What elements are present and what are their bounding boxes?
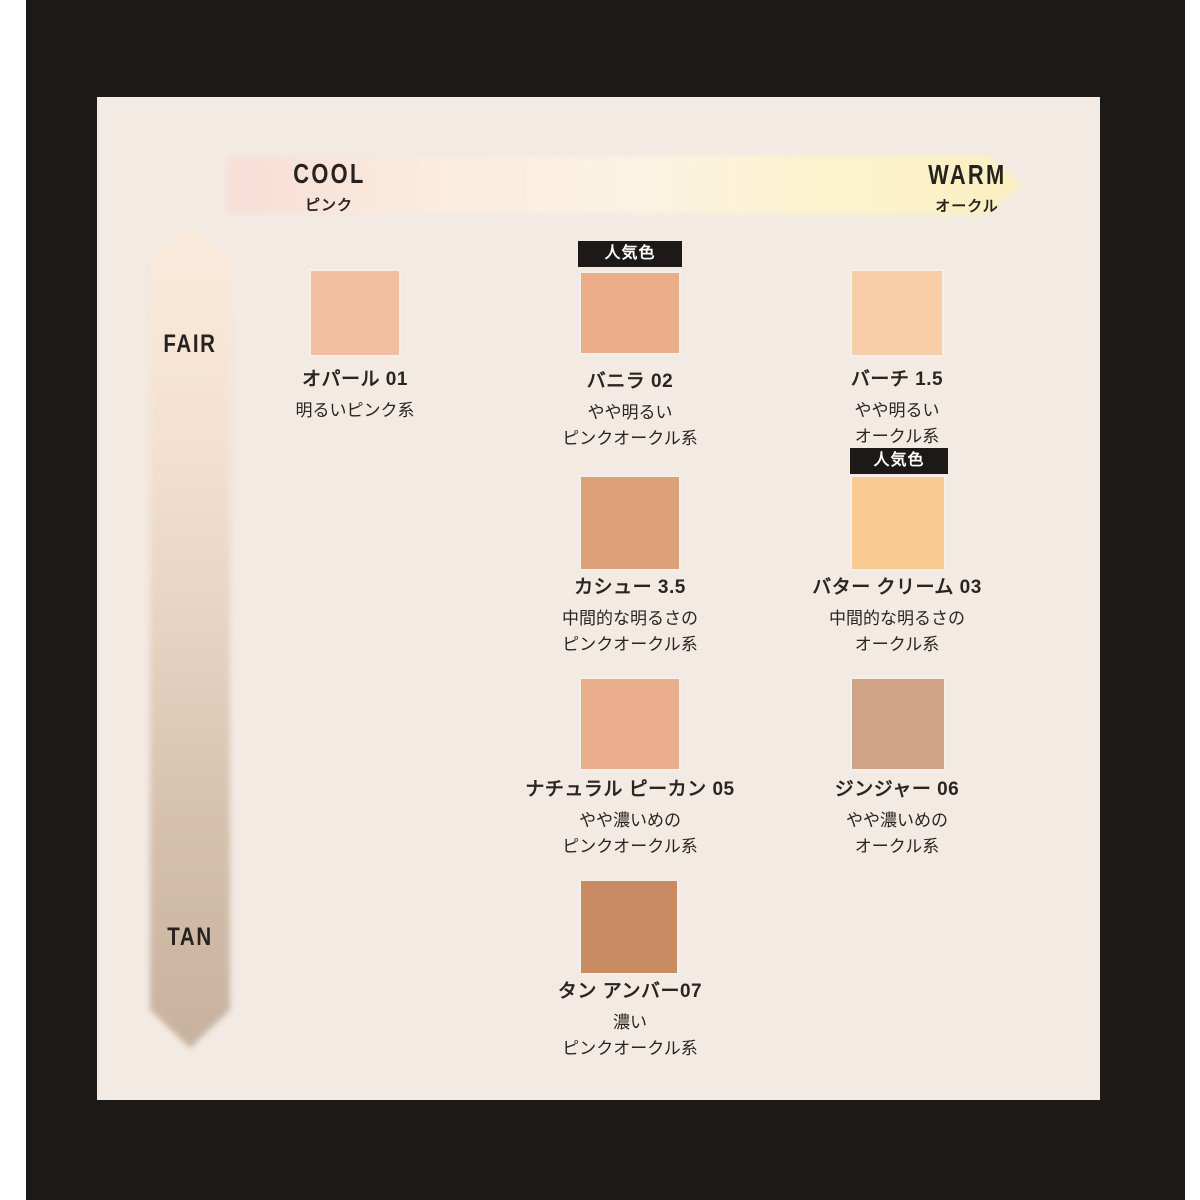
shade-name: バニラ 02 [490,366,770,393]
shade-label-tan-amber-07: タン アンバー07 濃い ピンクオークル系 [490,976,770,1062]
shade-name: ジンジャー 06 [757,774,1037,801]
popular-badge: 人気色 [850,448,948,474]
shade-label-vanilla-02: バニラ 02 やや明るい ピンクオークル系 [490,366,770,452]
shade-label-cashew-3.5: カシュー 3.5 中間的な明るさの ピンクオークル系 [490,572,770,658]
cool-axis-label: COOL ピンク [249,158,409,215]
shade-swatch-opal-01 [311,271,399,355]
warm-label: WARM [928,159,1007,191]
shade-label-natural-pecan-05: ナチュラル ピーカン 05 やや濃いめの ピンクオークル系 [490,774,770,860]
shade-name: バーチ 1.5 [757,364,1037,391]
shade-desc: やや濃いめの [757,808,1037,834]
shade-desc: オークル系 [757,834,1037,860]
warm-sublabel: オークル [935,195,999,216]
cool-sublabel: ピンク [305,194,353,215]
fair-label: FAIR [157,330,223,359]
shade-desc: 濃い [490,1010,770,1036]
shade-desc: やや濃いめの [490,808,770,834]
shade-label-butter-cream-03: バター クリーム 03 中間的な明るさの オークル系 [757,572,1037,658]
shade-swatch-tan-amber-07 [581,881,677,973]
shade-desc: オークル系 [757,424,1037,450]
shade-swatch-butter-cream-03 [852,477,944,569]
cool-label: COOL [293,158,365,190]
shade-name: ナチュラル ピーカン 05 [490,774,770,801]
shade-swatch-vanilla-02 [581,273,679,353]
warm-axis-label: WARM オークル [897,159,1037,216]
shade-chart-image: COOL ピンク WARM オークル FAIR TAN 人気色 人気色 オパール… [0,0,1200,1200]
shade-desc: ピンクオークル系 [490,1036,770,1062]
shade-desc: オークル系 [757,632,1037,658]
shade-desc: ピンクオークル系 [490,834,770,860]
shade-desc: 中間的な明るさの [757,606,1037,632]
shade-swatch-birch-1.5 [852,271,942,355]
shade-desc: やや明るい [757,398,1037,424]
shade-desc: 明るいピンク系 [215,398,495,424]
shade-swatch-ginger-06 [852,679,944,769]
popular-badge: 人気色 [578,241,682,267]
shade-name: カシュー 3.5 [490,572,770,599]
shade-swatch-cashew-3.5 [581,477,679,569]
shade-label-opal-01: オパール 01 明るいピンク系 [215,364,495,424]
shade-name: オパール 01 [215,364,495,391]
shade-label-birch-1.5: バーチ 1.5 やや明るい オークル系 [757,364,1037,450]
shade-swatch-natural-pecan-05 [581,679,679,769]
shade-desc: やや明るい [490,400,770,426]
tan-label: TAN [157,923,223,952]
shade-desc: ピンクオークル系 [490,632,770,658]
shade-name: バター クリーム 03 [757,572,1037,599]
shade-chart-panel: COOL ピンク WARM オークル FAIR TAN 人気色 人気色 オパール… [97,97,1100,1100]
shade-desc: ピンクオークル系 [490,426,770,452]
shade-desc: 中間的な明るさの [490,606,770,632]
shade-name: タン アンバー07 [490,976,770,1003]
shade-label-ginger-06: ジンジャー 06 やや濃いめの オークル系 [757,774,1037,860]
